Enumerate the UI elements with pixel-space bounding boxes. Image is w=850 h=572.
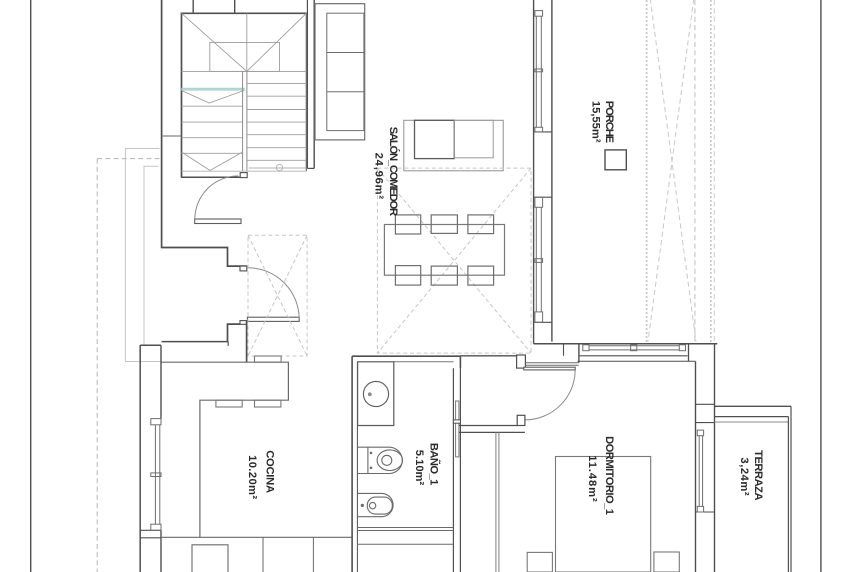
svg-text:SALÓN_COMEDOR: SALÓN_COMEDOR [387,127,400,216]
svg-text:10.20m²: 10.20m² [246,455,258,499]
svg-text:3,24m²: 3,24m² [738,457,750,496]
svg-text:24,96m²: 24,96m² [372,153,384,200]
svg-text:COCINA: COCINA [264,450,276,493]
svg-text:TERRAZA: TERRAZA [752,450,764,500]
svg-text:11.48m²: 11.48m² [586,455,598,502]
svg-text:PORCHE: PORCHE [603,101,615,144]
svg-text:15,55m²: 15,55m² [590,101,602,143]
svg-text:5.10m²: 5.10m² [413,450,425,486]
svg-text:DORMITORIO_1: DORMITORIO_1 [603,436,615,515]
svg-text:BAÑO_1: BAÑO_1 [428,443,441,485]
